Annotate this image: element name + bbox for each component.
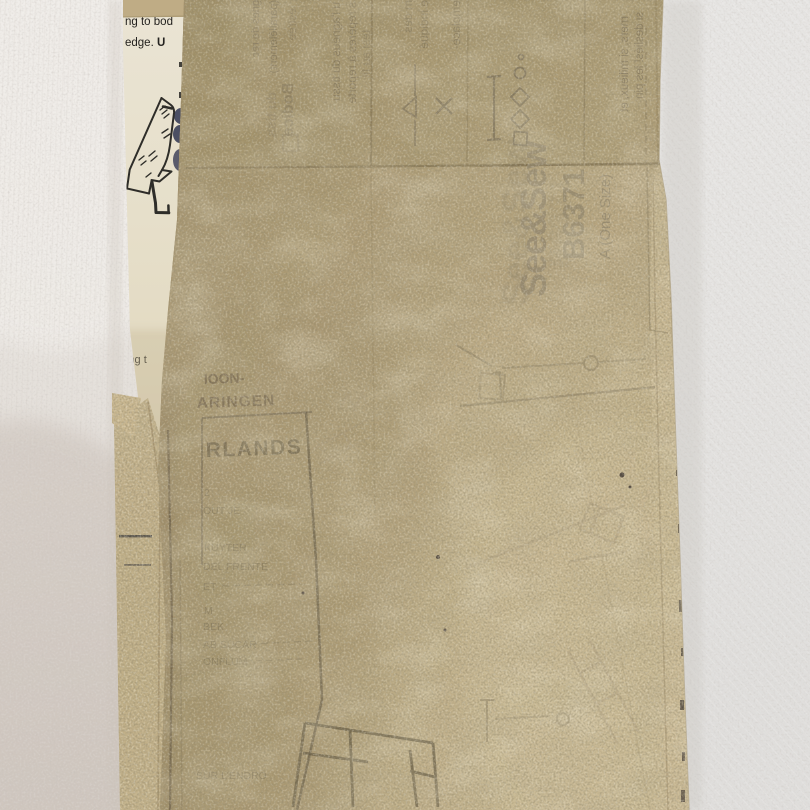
svg-text:ng to bod: ng to bod: [125, 16, 173, 28]
svg-text:edge. U: edge. U: [125, 37, 165, 49]
